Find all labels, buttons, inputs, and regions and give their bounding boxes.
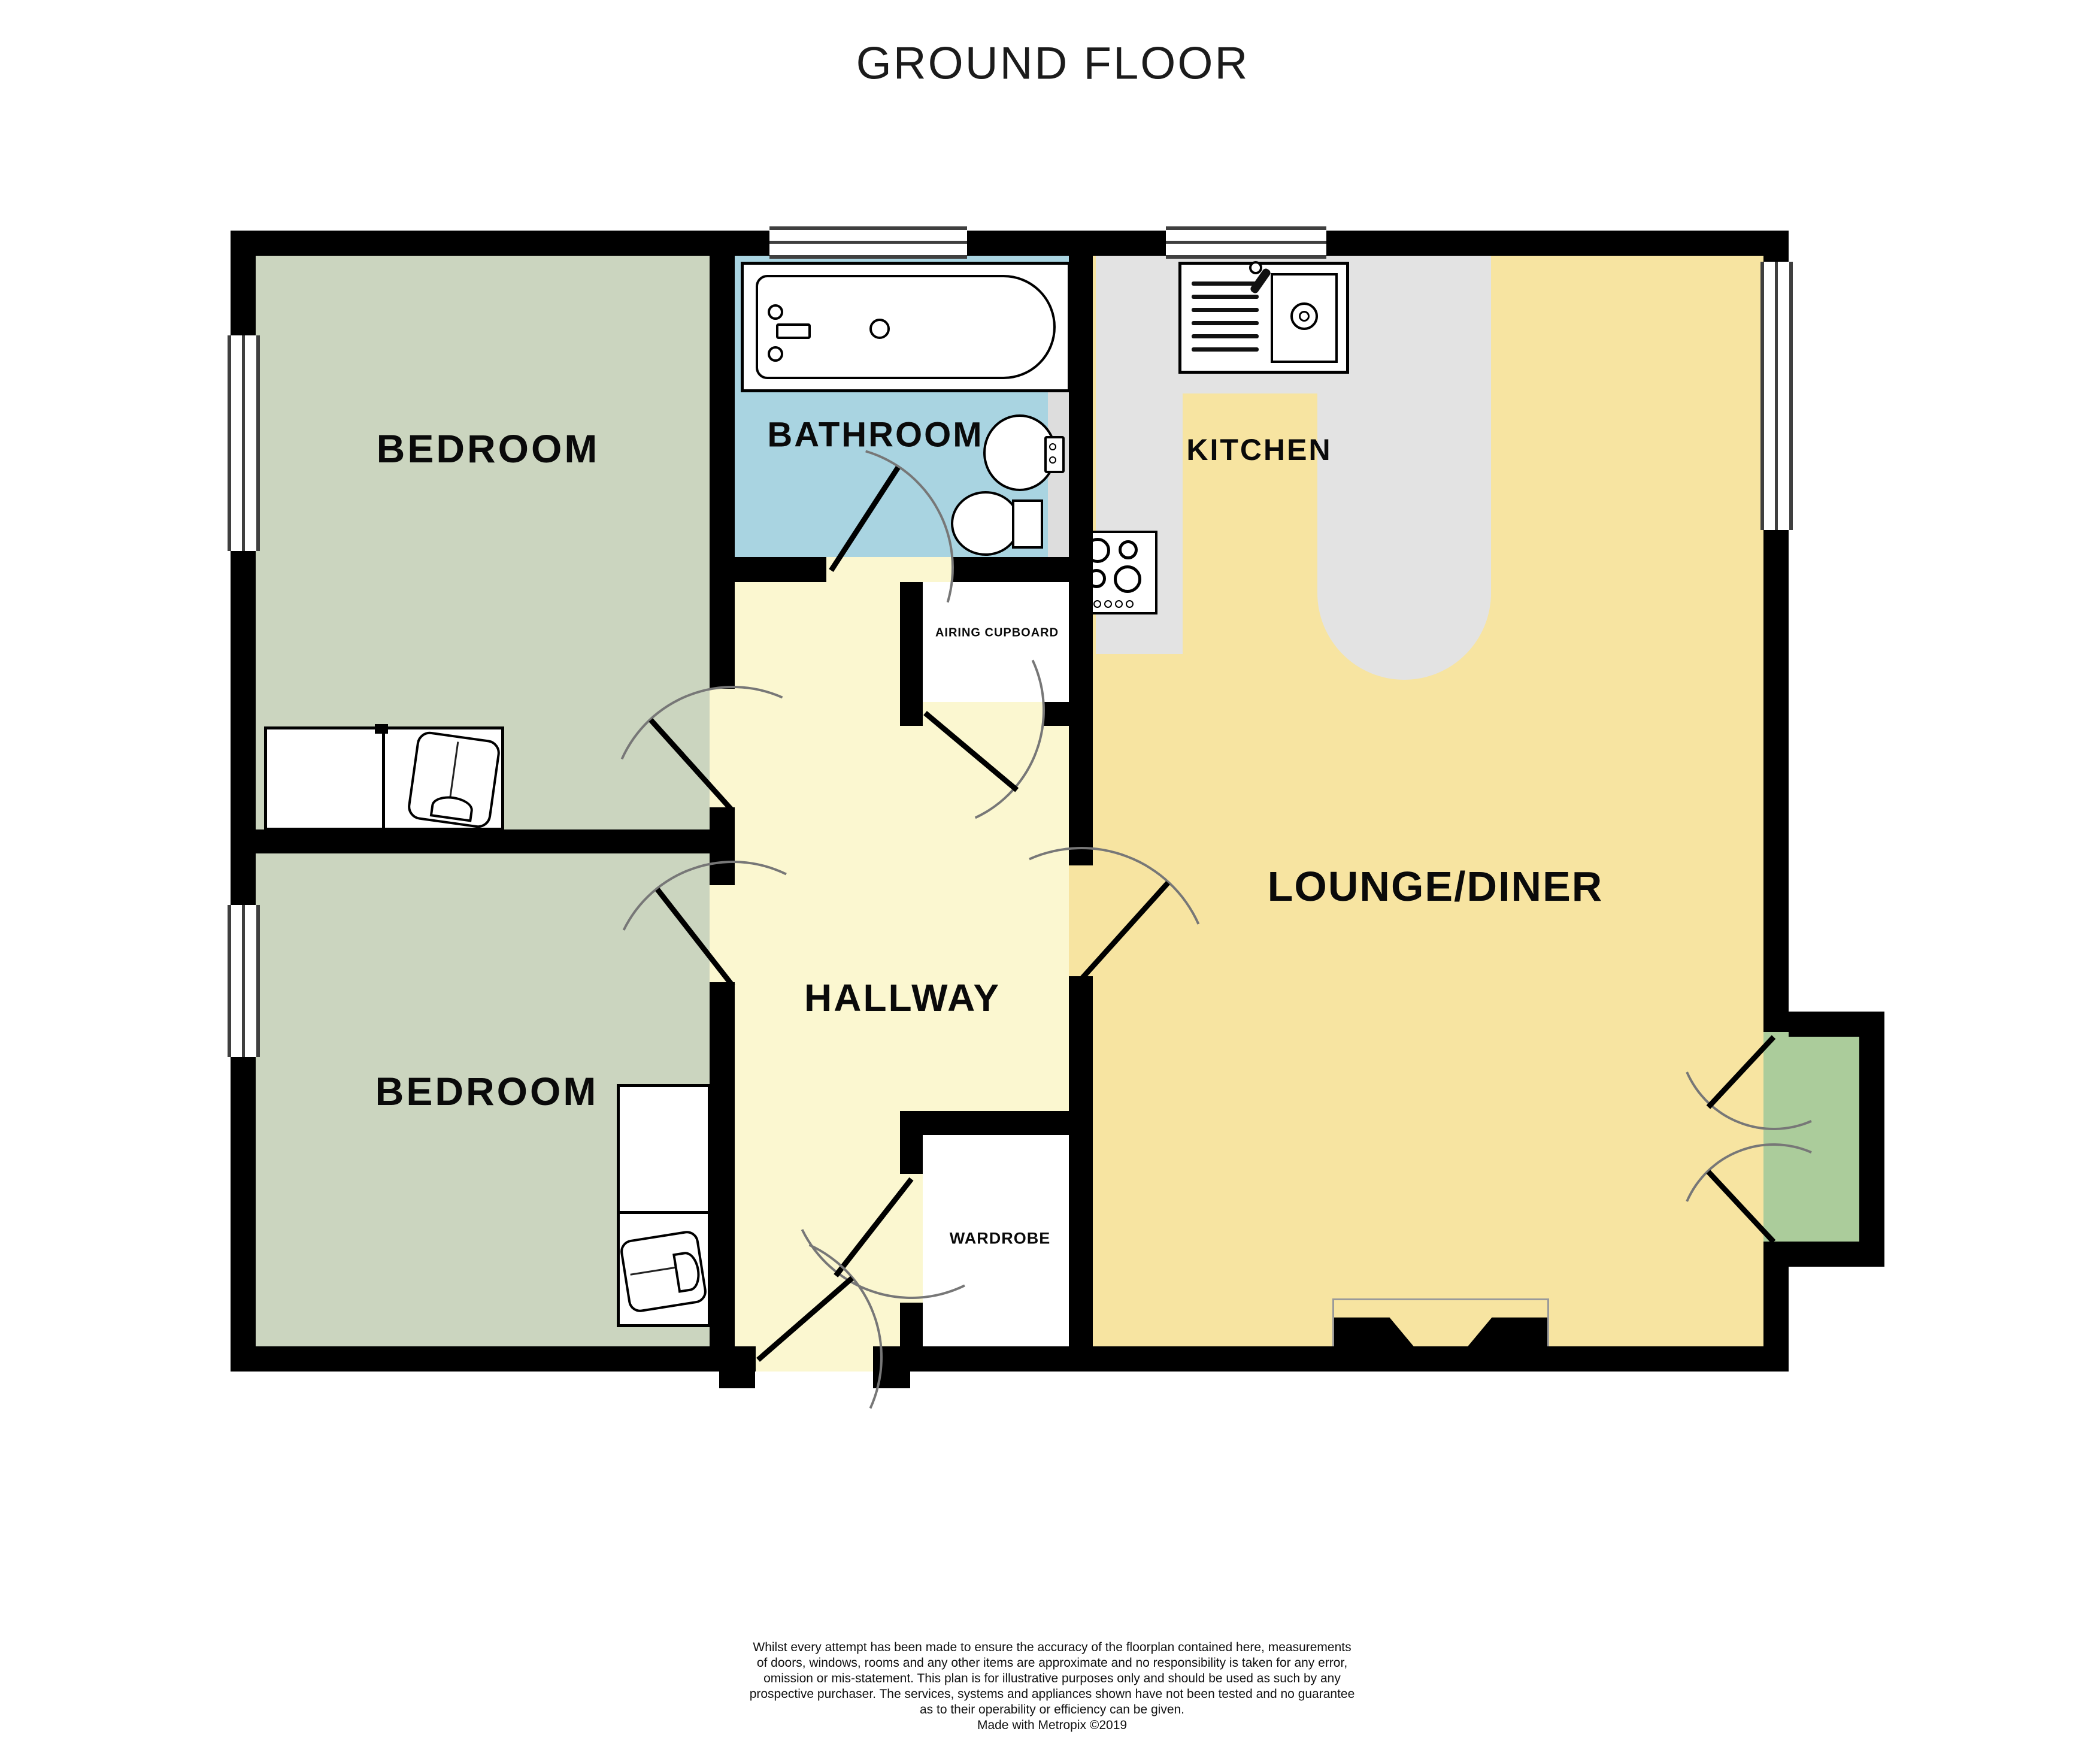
sink-drainer-icon xyxy=(1192,347,1259,352)
hob-knob-icon xyxy=(1126,600,1134,608)
room-label-bedroom-1: BEDROOM xyxy=(377,426,600,471)
bed-divider xyxy=(375,724,388,734)
hob-knob-icon xyxy=(1104,600,1112,608)
fireplace-icon xyxy=(1332,1298,1549,1350)
disclaimer: Whilst every attempt has been made to en… xyxy=(393,1640,1711,1733)
sink-drainer-icon xyxy=(1192,295,1259,299)
bathtub-drain-icon xyxy=(869,319,890,339)
sink-drainer-icon xyxy=(1192,308,1259,312)
bathtub-tap-icon xyxy=(768,304,783,320)
hob-knob-icon xyxy=(1093,600,1101,608)
room-label-bedroom-2: BEDROOM xyxy=(375,1068,599,1114)
room-label-lounge-diner: LOUNGE/DINER xyxy=(1268,862,1604,910)
floor-plan-page: GROUND FLOOR xyxy=(0,0,2100,1762)
disclaimer-line: of doors, windows, rooms and any other i… xyxy=(393,1655,1711,1671)
window-bedroom-1 xyxy=(228,335,260,551)
window-lounge xyxy=(1760,262,1793,530)
hob-knob-icon xyxy=(1115,600,1123,608)
disclaimer-line: omission or mis-statement. This plan is … xyxy=(393,1671,1711,1687)
sink-drainer-icon xyxy=(1192,281,1259,286)
plan-title: GROUND FLOOR xyxy=(856,38,1250,90)
window-bathroom xyxy=(769,226,967,259)
disclaimer-line: as to their operability or efficiency ca… xyxy=(393,1702,1711,1718)
room-label-wardrobe: WARDROBE xyxy=(950,1230,1051,1248)
window-bedroom-2 xyxy=(228,905,260,1057)
room-label-kitchen: KITCHEN xyxy=(1186,432,1332,467)
bathtub-spout-icon xyxy=(776,323,811,339)
disclaimer-line: prospective purchaser. The services, sys… xyxy=(393,1687,1711,1702)
basin-tap-icon xyxy=(1049,456,1056,464)
hob-burner-icon xyxy=(1119,540,1138,559)
toilet-cistern-icon xyxy=(1012,499,1043,549)
window-kitchen xyxy=(1166,226,1326,259)
sink-drainer-icon xyxy=(1192,334,1259,338)
sink-faucet-icon xyxy=(1249,261,1262,274)
wall xyxy=(1044,702,1093,726)
wall xyxy=(1069,256,1093,1346)
disclaimer-line: Whilst every attempt has been made to en… xyxy=(393,1640,1711,1655)
room-label-bathroom: BATHROOM xyxy=(767,415,983,455)
room-label-hallway: HALLWAY xyxy=(804,976,1001,1020)
bed-divider xyxy=(382,726,385,831)
sink-drain-icon xyxy=(1299,311,1310,322)
basin-tap-icon xyxy=(1044,436,1065,473)
hob-burner-icon xyxy=(1114,565,1141,593)
sink-drainer-icon xyxy=(1192,321,1259,325)
basin-tap-icon xyxy=(1049,443,1056,450)
wall xyxy=(231,1346,1789,1372)
wall xyxy=(231,231,1789,256)
room-label-airing-cupboard: AIRING CUPBOARD xyxy=(935,626,1059,640)
toilet-icon xyxy=(951,491,1020,556)
bed-divider xyxy=(617,1211,711,1214)
credit-line: Made with Metropix ©2019 xyxy=(393,1718,1711,1733)
bathtub-tap-icon xyxy=(768,346,783,362)
